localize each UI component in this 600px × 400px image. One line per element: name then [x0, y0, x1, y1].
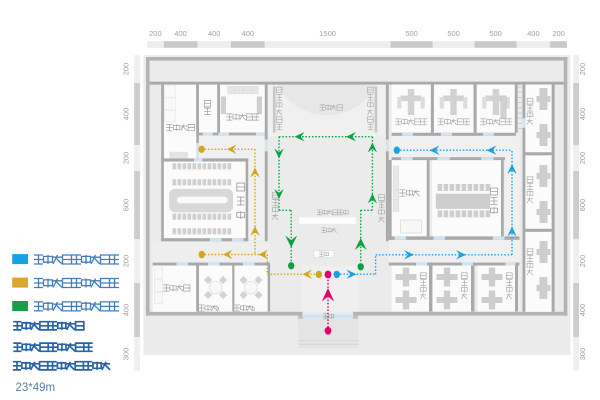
svg-text:200: 200 [122, 255, 131, 268]
svg-text:400: 400 [208, 29, 221, 38]
svg-text:23*49m: 23*49m [16, 382, 56, 394]
svg-text:b: b [252, 306, 256, 313]
svg-text:400: 400 [174, 29, 187, 38]
svg-text:200: 200 [552, 29, 565, 38]
svg-text:400: 400 [527, 29, 540, 38]
svg-text:200: 200 [122, 152, 131, 165]
svg-text:400: 400 [122, 304, 131, 317]
svg-text:500: 500 [447, 29, 460, 38]
svg-text:200: 200 [149, 29, 162, 38]
svg-text:200: 200 [122, 63, 131, 76]
svg-text:200: 200 [578, 63, 587, 76]
svg-text:300: 300 [122, 348, 131, 361]
svg-text:200: 200 [578, 255, 587, 268]
svg-text:500: 500 [489, 29, 502, 38]
svg-text:400: 400 [578, 304, 587, 317]
svg-text:a: a [216, 306, 220, 313]
svg-text:400: 400 [578, 108, 587, 121]
svg-text:500: 500 [405, 29, 418, 38]
svg-text:400: 400 [242, 29, 255, 38]
svg-text:200: 200 [578, 152, 587, 165]
svg-text:300: 300 [578, 348, 587, 361]
svg-text:600: 600 [122, 199, 131, 212]
svg-text:1500: 1500 [319, 29, 336, 38]
svg-text:600: 600 [578, 199, 587, 212]
svg-text:400: 400 [122, 108, 131, 121]
